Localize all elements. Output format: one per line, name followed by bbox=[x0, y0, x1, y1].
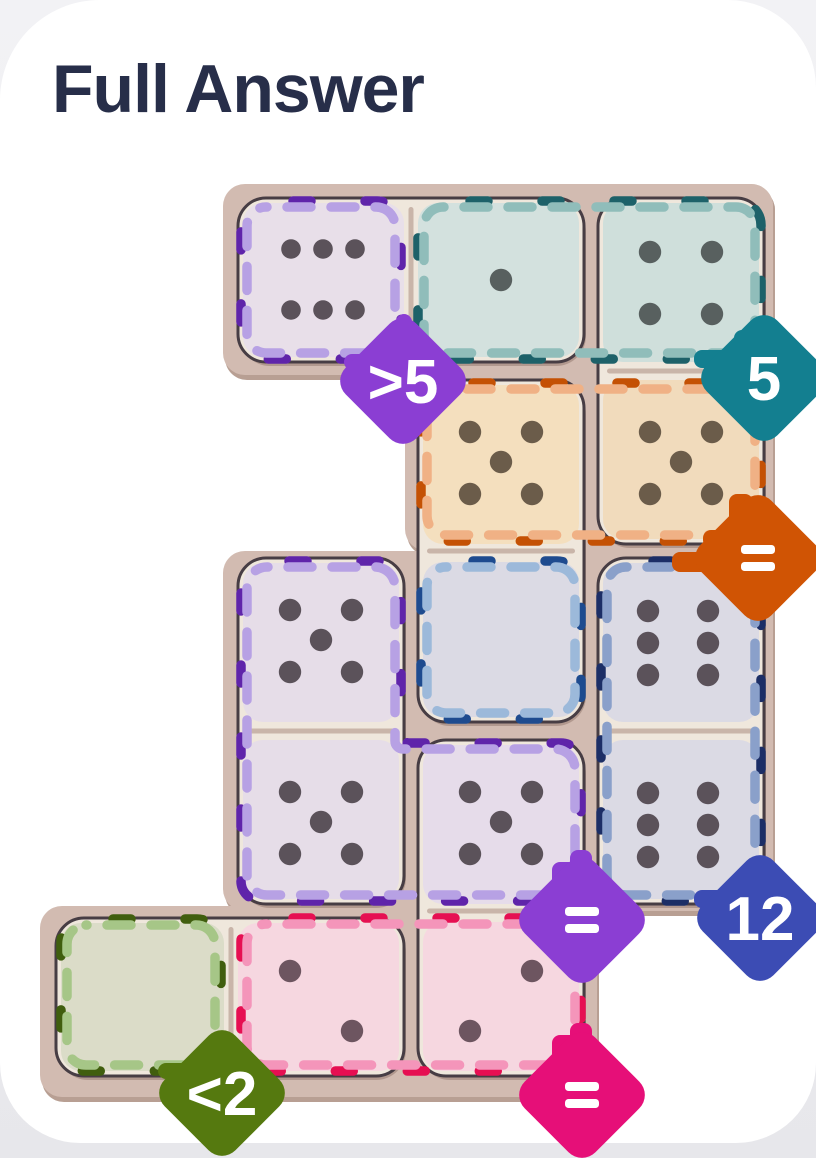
svg-text:12: 12 bbox=[726, 885, 795, 954]
svg-text:5: 5 bbox=[747, 345, 781, 414]
svg-text:<2: <2 bbox=[187, 1060, 258, 1129]
svg-text:>5: >5 bbox=[368, 348, 439, 417]
